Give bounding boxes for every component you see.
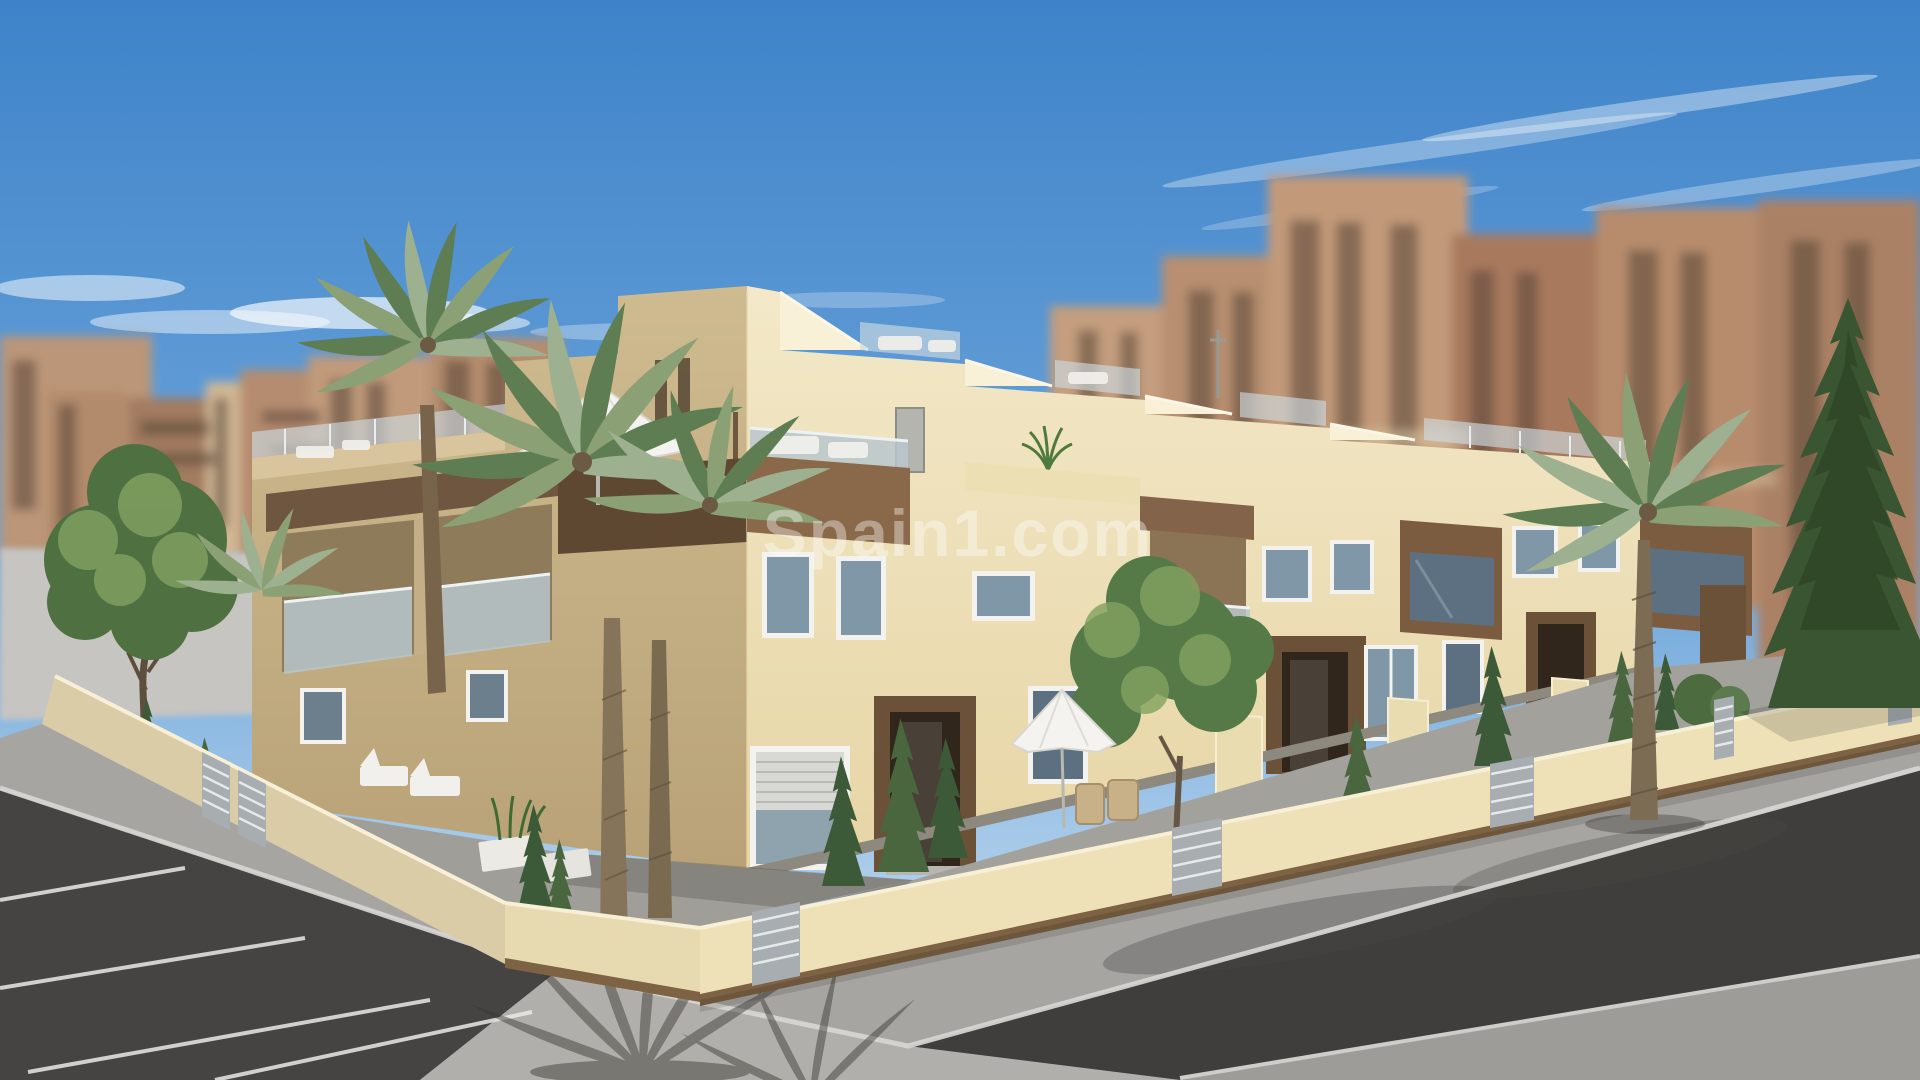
window	[1442, 640, 1484, 714]
wicker-chair	[1108, 780, 1138, 820]
roof-furniture	[296, 446, 334, 458]
wicker-chair	[1076, 784, 1104, 824]
watermark-text: Spain1.com	[763, 496, 1153, 570]
roof-furniture	[342, 440, 370, 450]
wood-balcony-box	[1400, 520, 1502, 640]
wood-column	[1700, 585, 1746, 670]
render-image: Spain1.com	[0, 0, 1920, 1080]
scene: Spain1.com	[0, 0, 1920, 1080]
